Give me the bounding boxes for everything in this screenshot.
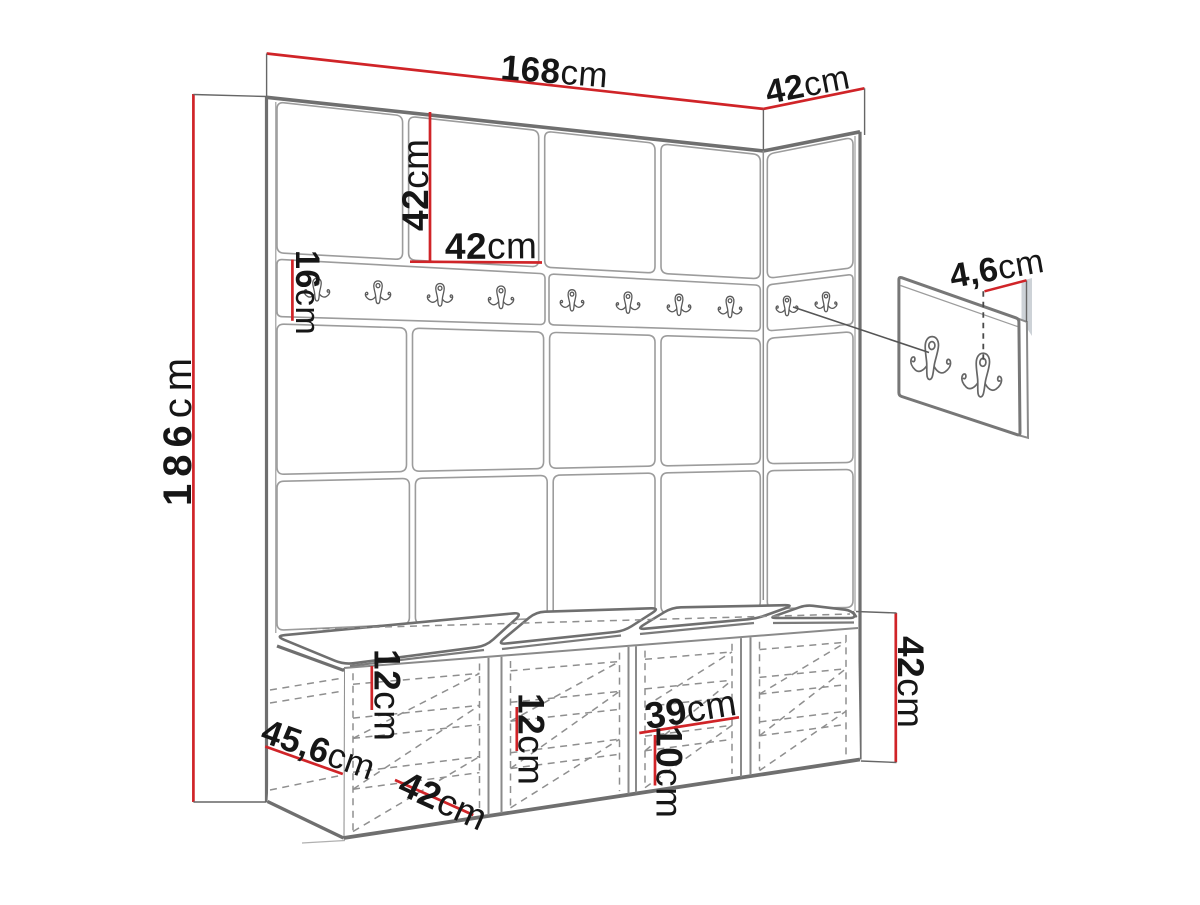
svg-text:12cm: 12cm (367, 649, 408, 741)
svg-text:12cm: 12cm (511, 693, 552, 785)
svg-text:16cm: 16cm (288, 250, 326, 335)
svg-text:42cm: 42cm (395, 139, 436, 231)
svg-text:186cm: 186cm (156, 351, 200, 506)
svg-text:42cm: 42cm (890, 636, 931, 728)
svg-text:42cm: 42cm (445, 225, 538, 267)
svg-text:10cm: 10cm (649, 726, 690, 818)
